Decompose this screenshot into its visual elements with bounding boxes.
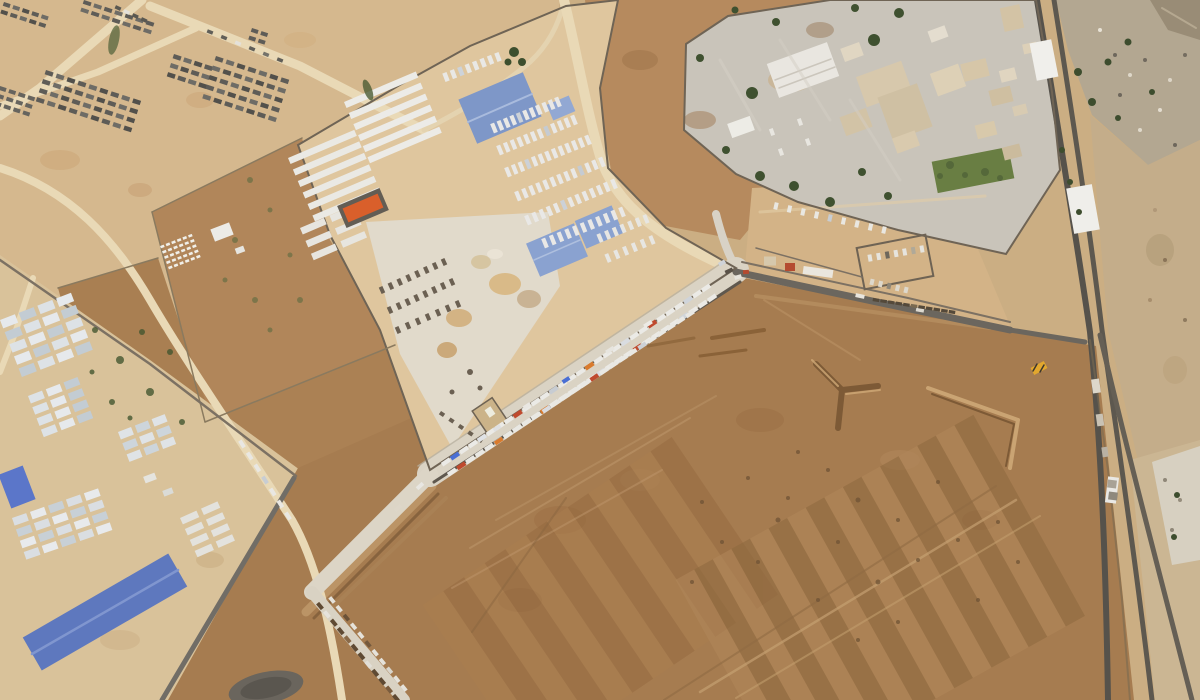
satellite-image	[0, 0, 1200, 700]
satellite-image-viewport	[0, 0, 1200, 700]
